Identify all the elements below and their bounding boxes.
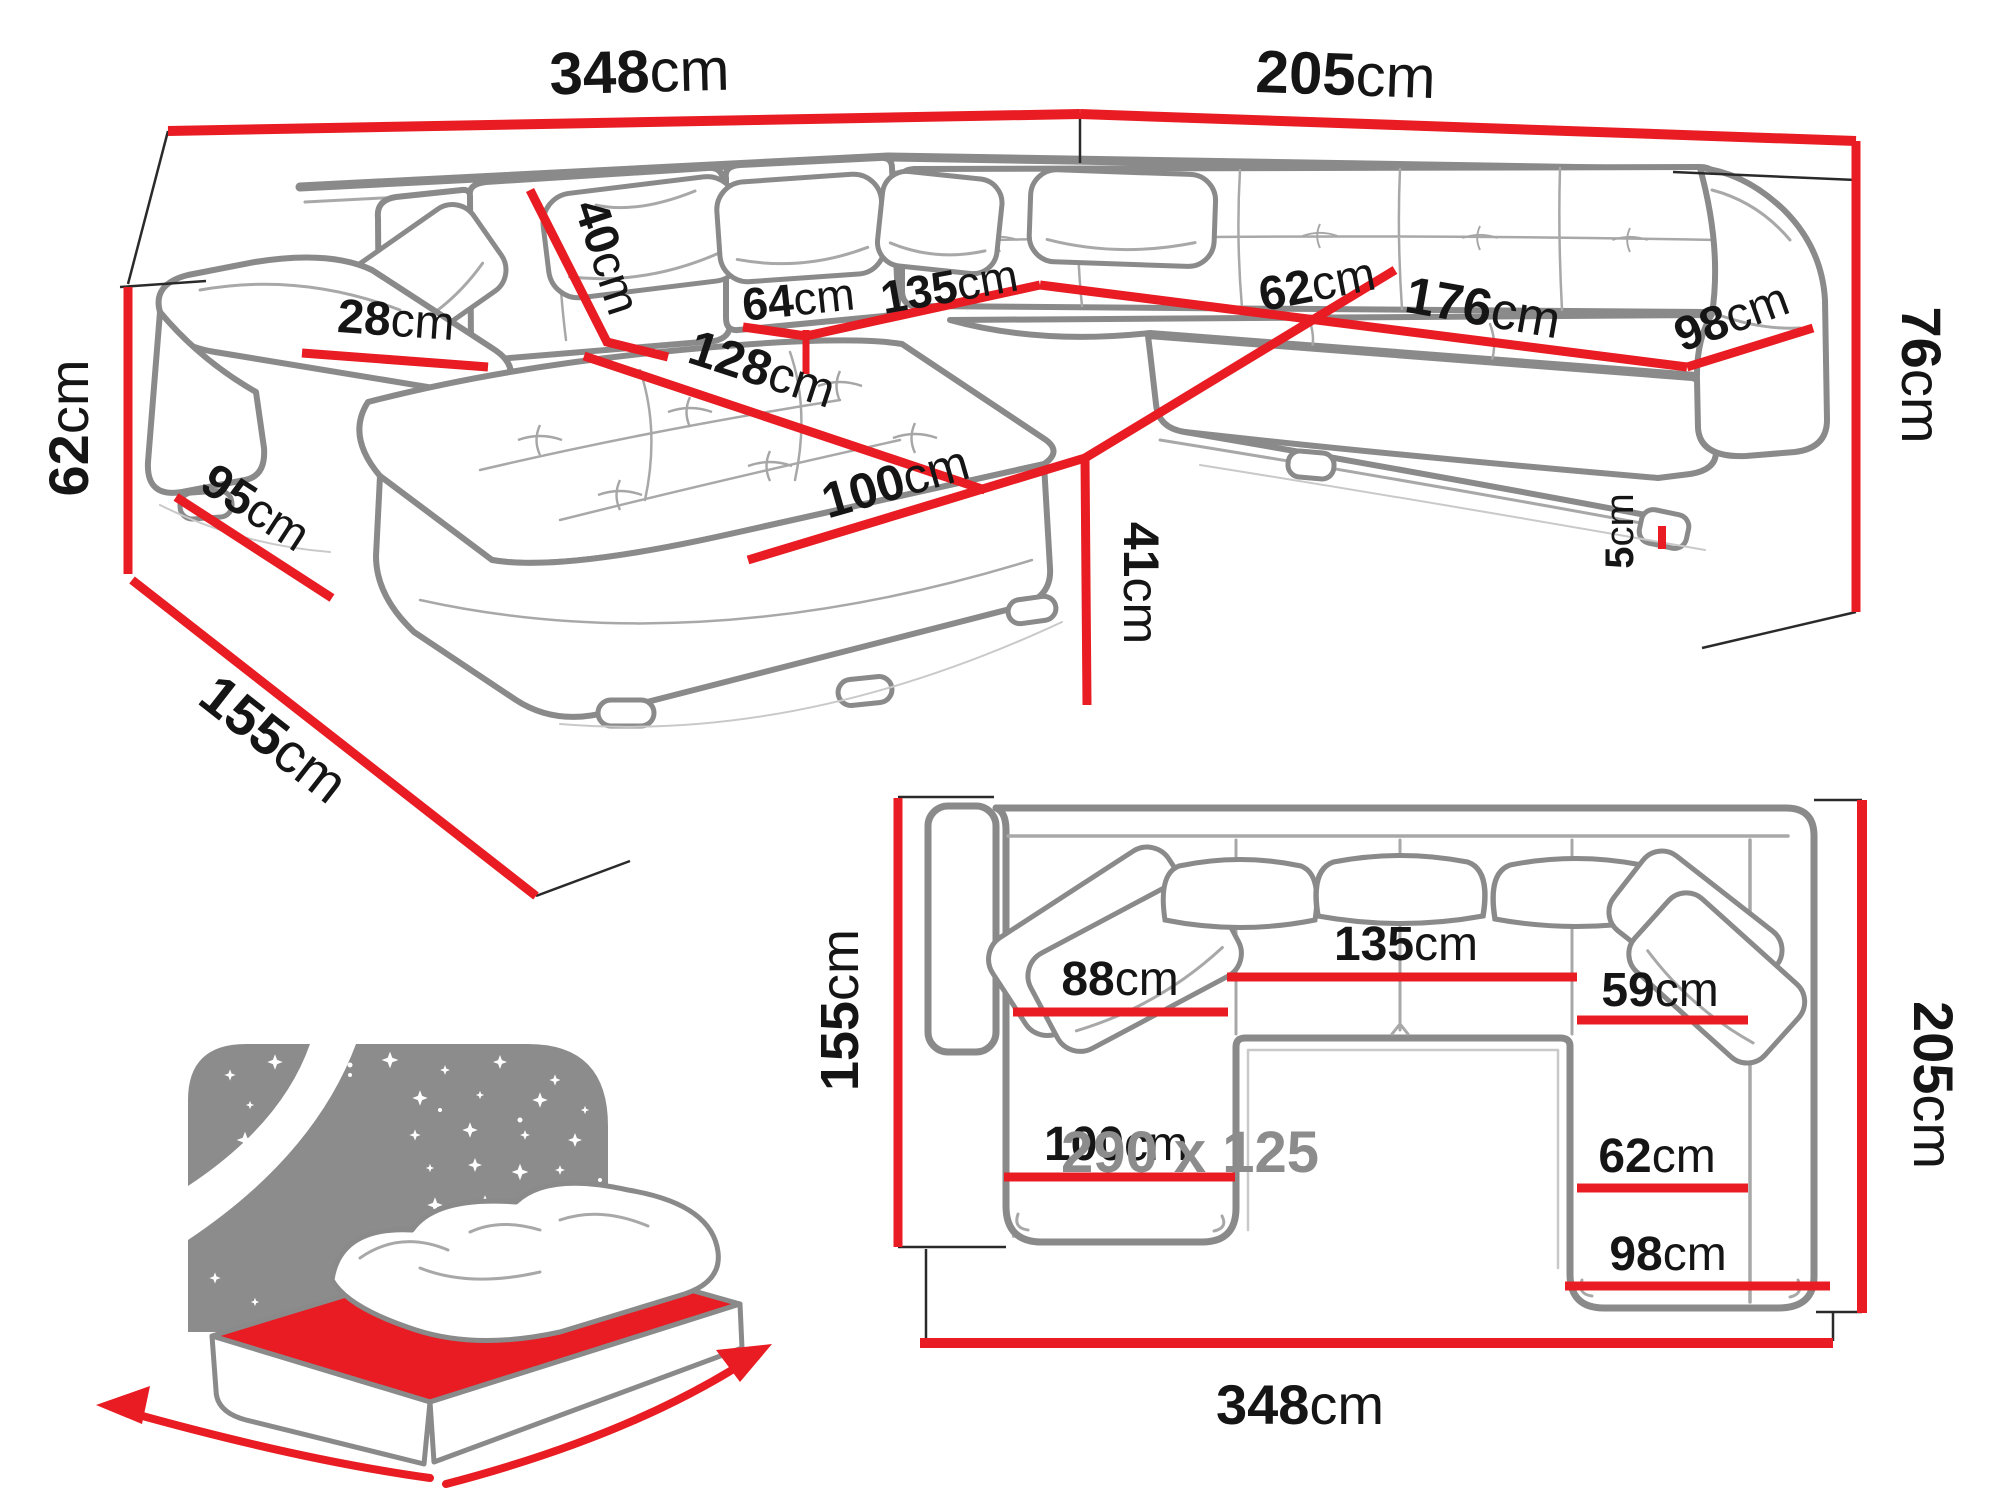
- sofa-perspective-sketch: [148, 157, 1827, 727]
- dim-line-205: [1080, 114, 1856, 141]
- label-top-205: 205cm: [1902, 1001, 1965, 1169]
- dim-line-348: [168, 114, 1080, 131]
- label-62-left: 62cm: [37, 360, 100, 497]
- label-top-59: 59cm: [1601, 964, 1718, 1017]
- pillow: [1028, 169, 1216, 267]
- label-348: 348cm: [549, 36, 731, 108]
- pillow-top: [1316, 856, 1485, 924]
- label-top-135: 135cm: [1334, 918, 1478, 971]
- label-41: 41cm: [1113, 522, 1169, 644]
- sofa-top-view: 155cm 88cm 135cm 59cm 62cm 100cm 98cm 34…: [810, 797, 1965, 1436]
- label-top-98: 98cm: [1609, 1228, 1726, 1281]
- label-5: 5cm: [1598, 493, 1642, 569]
- label-76: 76cm: [1890, 307, 1953, 444]
- label-top-348: 348cm: [1216, 1373, 1384, 1436]
- sleeping-area-label: 290 x 125: [1061, 1120, 1319, 1185]
- sofa-dimension-diagram: 348cm 205cm 76cm 62cm 155cm 95cm 28cm 40…: [0, 0, 2000, 1500]
- label-top-88: 88cm: [1061, 953, 1178, 1006]
- top-left-arm: [928, 806, 996, 1052]
- pillow: [715, 172, 887, 283]
- pillow-top: [1163, 860, 1317, 928]
- label-28: 28cm: [336, 290, 457, 351]
- bed-icon: [96, 1044, 772, 1484]
- label-205: 205cm: [1255, 38, 1437, 111]
- dim-line-41: [1085, 458, 1087, 705]
- sofa-perspective-view: 348cm 205cm 76cm 62cm 155cm 95cm 28cm 40…: [37, 36, 1953, 896]
- label-top-62: 62cm: [1598, 1130, 1715, 1183]
- label-top-155: 155cm: [810, 929, 870, 1091]
